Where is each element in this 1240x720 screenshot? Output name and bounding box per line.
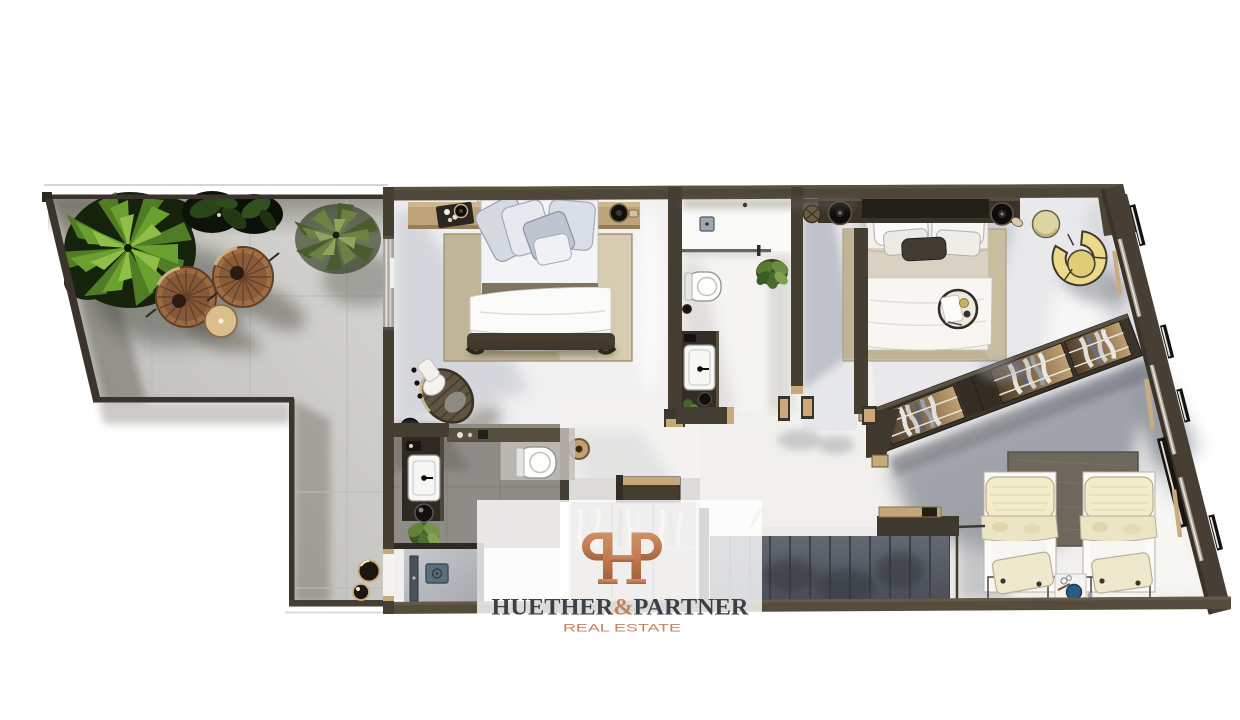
svg-text:HUETHER&PARTNER: HUETHER&PARTNER (492, 595, 750, 621)
svg-text:REAL ESTATE: REAL ESTATE (563, 623, 681, 635)
